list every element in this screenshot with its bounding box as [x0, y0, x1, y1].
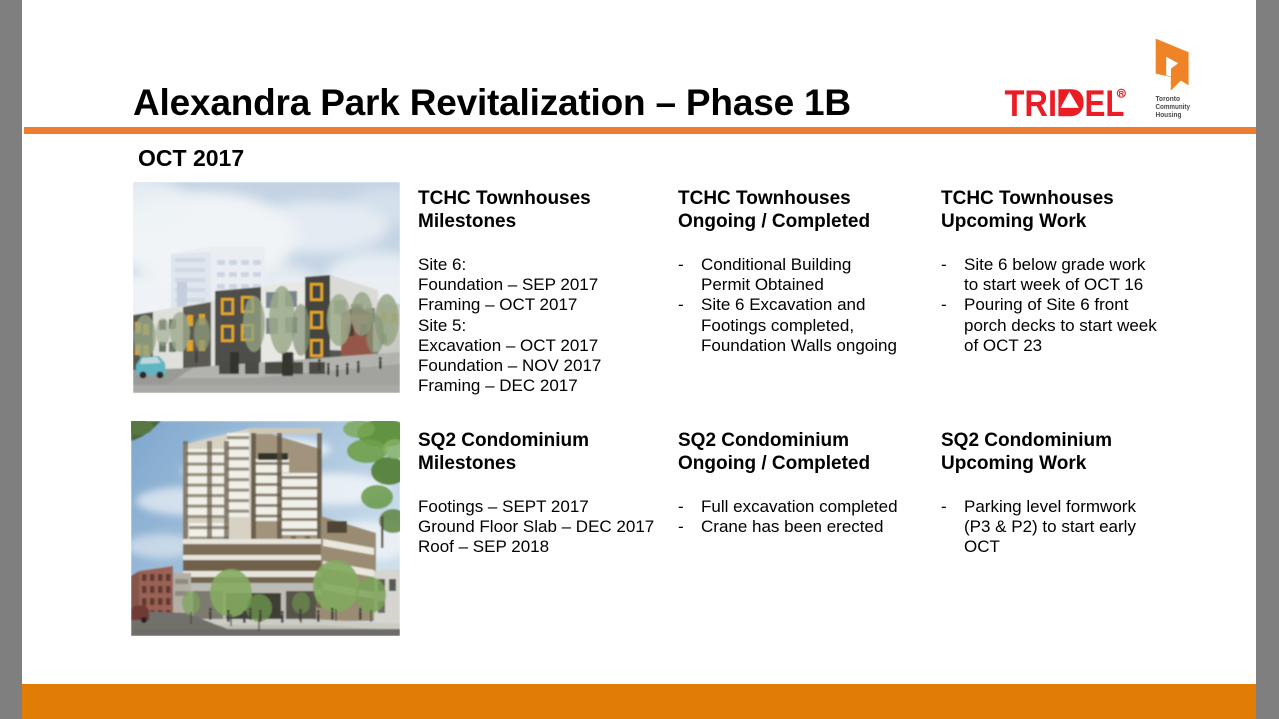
- svg-text:R: R: [1119, 89, 1125, 98]
- svg-text:TRI: TRI: [1005, 88, 1058, 122]
- svg-text:Housing: Housing: [1156, 110, 1182, 119]
